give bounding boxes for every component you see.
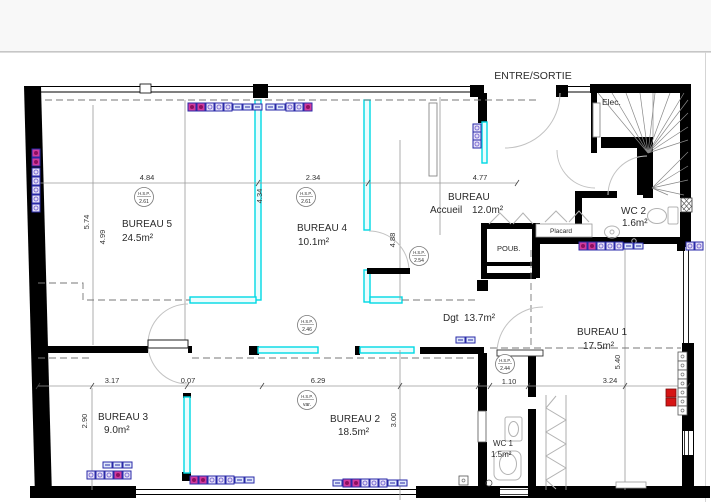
network-socket-symbol xyxy=(388,480,397,486)
hsp-label: H.S.P. xyxy=(301,394,313,399)
socket-symbol xyxy=(188,103,196,111)
socket-symbol xyxy=(32,158,40,166)
hsp-accueil: H.S.P. 2.54 xyxy=(410,247,429,266)
network-socket-symbol xyxy=(266,104,275,110)
elec-door-leaf xyxy=(593,103,600,137)
panel-symbol xyxy=(678,397,687,406)
heater-symbol xyxy=(666,398,676,406)
hsp-label: H.S.P. xyxy=(499,358,511,363)
panel-symbol xyxy=(678,370,687,379)
socket-symbol xyxy=(352,479,360,487)
switch-symbol xyxy=(32,204,40,212)
wc1-door-gap xyxy=(528,397,536,409)
hsp-label: H.S.P. xyxy=(138,191,150,196)
dim-v-b5-b: 4.99 xyxy=(98,230,107,245)
dim-bot-b2: 6.29 xyxy=(311,376,326,385)
bureau5-area: 24.5m² xyxy=(122,233,154,244)
switch-symbol xyxy=(96,471,104,479)
socket-symbol xyxy=(304,103,312,111)
switch-symbol xyxy=(286,103,294,111)
dim-v-b4: 4.34 xyxy=(255,189,264,204)
hsp-bureau4: H.S.P. 2.61 xyxy=(297,188,316,207)
bureau2-name: BUREAU 2 xyxy=(330,414,380,425)
panel-symbol xyxy=(678,379,687,388)
wc2-area: 1.6m² xyxy=(622,218,648,229)
hsp-value: 2.61 xyxy=(139,199,149,205)
switch-symbol xyxy=(473,124,481,132)
hsp-value: 2.46 xyxy=(302,327,312,333)
socket-symbol xyxy=(114,471,122,479)
counter-block xyxy=(616,482,646,488)
panel-symbol xyxy=(678,361,687,370)
switch-symbol xyxy=(597,242,605,250)
switch-symbol xyxy=(379,479,387,487)
dim-top-right: 4.77 xyxy=(473,173,488,182)
ramp-zigzag xyxy=(546,396,566,489)
switch-symbol xyxy=(361,479,369,487)
bureau4-name: BUREAU 4 xyxy=(297,223,347,234)
switch-symbol xyxy=(32,168,40,176)
switch-symbol xyxy=(32,195,40,203)
dim-dgt-w: 1.10 xyxy=(502,377,517,386)
bureau1-name: BUREAU 1 xyxy=(577,327,627,338)
switch-symbol xyxy=(226,476,234,484)
switch-symbol xyxy=(105,471,113,479)
wc1-name: WC 1 xyxy=(493,439,514,448)
wc2-toilet-icon xyxy=(648,207,679,224)
dim-bot-b3: 3.17 xyxy=(105,376,120,385)
bureau1-area: 17.5m² xyxy=(583,341,615,352)
hsp-value: 2.44 xyxy=(500,366,510,372)
network-socket-symbol xyxy=(113,462,122,468)
network-socket-symbol xyxy=(253,104,262,110)
wc1-door-leaf xyxy=(478,411,486,442)
switch-symbol xyxy=(224,103,232,111)
socket-symbol xyxy=(588,242,596,250)
network-socket-symbol xyxy=(333,480,342,486)
socket-symbol xyxy=(199,476,207,484)
bureau4-door-leaf xyxy=(367,268,410,274)
hsp-bureau5: H.S.P. 2.61 xyxy=(135,188,154,207)
switch-symbol xyxy=(686,242,694,250)
bureau5-name: BUREAU 5 xyxy=(122,219,172,230)
construction-lines xyxy=(38,93,688,500)
entry-door-leaf xyxy=(429,103,437,176)
closet-chevrons-right xyxy=(545,211,589,222)
hatched-pier xyxy=(681,198,692,212)
elec-label: Elec. xyxy=(602,97,621,107)
window-mullion xyxy=(140,84,151,93)
switch-symbol xyxy=(217,476,225,484)
socket-symbol xyxy=(190,476,198,484)
network-socket-symbol xyxy=(233,104,242,110)
switch-symbol xyxy=(473,140,481,148)
dim-v-b2: 3.00 xyxy=(389,413,398,428)
switch-symbol xyxy=(32,186,40,194)
switch-symbol xyxy=(695,242,703,250)
network-socket-symbol xyxy=(466,337,475,343)
wc2-name: WC 2 xyxy=(621,206,646,217)
panel-symbol xyxy=(678,406,687,415)
switch-symbol xyxy=(370,479,378,487)
hsp-label: H.S.P. xyxy=(300,191,312,196)
hsp-value: 2.61 xyxy=(301,199,311,205)
network-socket-symbol xyxy=(276,104,285,110)
floor-plan: H.S.P. 2.61 H.S.P. 2.61 H.S.P. 2.54 H.S.… xyxy=(0,0,711,502)
dgt-name: Dgt xyxy=(443,313,459,324)
heater-symbol xyxy=(666,389,676,397)
wc2-sink-icon xyxy=(605,226,620,238)
floor-plan-page: H.S.P. 2.61 H.S.P. 2.61 H.S.P. 2.54 H.S.… xyxy=(0,0,711,502)
bureau3-area: 9.0m² xyxy=(104,425,130,436)
accueil-area: 12.0m² xyxy=(472,205,504,216)
placard-label: Placard xyxy=(550,228,572,235)
network-socket-symbol xyxy=(123,462,132,468)
bureau2-area: 18.5m² xyxy=(338,427,370,438)
socket-symbol xyxy=(343,479,351,487)
hsp-value: 2.54 xyxy=(414,258,424,264)
switch-symbol xyxy=(473,132,481,140)
network-socket-symbol xyxy=(624,243,633,249)
switch-symbol xyxy=(208,476,216,484)
network-socket-symbol xyxy=(103,462,112,468)
dim-top-left: 4.84 xyxy=(140,173,155,182)
top-bar xyxy=(0,0,711,51)
hsp-label: H.S.P. xyxy=(301,319,313,324)
poub-label: POUB. xyxy=(497,244,520,253)
dim-v-b5-a: 5.74 xyxy=(82,215,91,230)
panel-symbol xyxy=(678,388,687,397)
dim-v-accueil: 4.88 xyxy=(388,233,397,248)
network-socket-symbol xyxy=(235,477,244,483)
dim-bot-gap: 0.07 xyxy=(181,376,196,385)
dim-v-b1: 5.40 xyxy=(613,355,622,370)
switch-symbol xyxy=(87,471,95,479)
hsp-dgt: H.S.P. 2.44 xyxy=(496,355,515,374)
bureau1-door-arc xyxy=(497,307,543,353)
dim-top-mid: 2.34 xyxy=(306,173,321,182)
bureau4-area: 10.1m² xyxy=(298,237,330,248)
dgt-area: 13.7m² xyxy=(464,313,496,324)
switch-symbol xyxy=(123,471,131,479)
socket-symbol xyxy=(197,103,205,111)
wc1-sink-icon xyxy=(505,417,522,441)
dim-v-b3: 2.90 xyxy=(80,414,89,429)
accueil-subname: Accueil xyxy=(430,205,462,216)
panel-symbol xyxy=(459,476,468,485)
wc1-area: 1.5m² xyxy=(491,450,512,459)
corridor-door-leaf xyxy=(148,340,188,348)
dim-b1-w: 3.24 xyxy=(603,376,618,385)
switch-symbol xyxy=(606,242,614,250)
hsp-label: H.S.P. xyxy=(413,250,425,255)
bureau3-name: BUREAU 3 xyxy=(98,412,148,423)
switch-symbol xyxy=(295,103,303,111)
entrance-door-arc xyxy=(505,93,560,148)
switch-symbol xyxy=(215,103,223,111)
lobby-door-arc xyxy=(557,150,595,188)
switch-symbol xyxy=(615,242,623,250)
network-socket-symbol xyxy=(634,243,643,249)
socket-symbol xyxy=(579,242,587,250)
accueil-name: BUREAU xyxy=(448,192,490,203)
entry-exit-label: ENTRE/SORTIE xyxy=(494,70,571,82)
socket-symbol xyxy=(32,149,40,157)
switch-symbol xyxy=(206,103,214,111)
hsp-bureau2: H.S.P. var. xyxy=(298,391,317,410)
hsp-value: var. xyxy=(303,402,311,408)
network-socket-symbol xyxy=(243,104,252,110)
network-socket-symbol xyxy=(456,337,465,343)
network-socket-symbol xyxy=(245,477,254,483)
panel-symbol xyxy=(678,352,687,361)
network-socket-symbol xyxy=(398,480,407,486)
hsp-corridor: H.S.P. 2.46 xyxy=(298,316,317,335)
doors xyxy=(148,93,647,442)
switch-symbol xyxy=(32,177,40,185)
